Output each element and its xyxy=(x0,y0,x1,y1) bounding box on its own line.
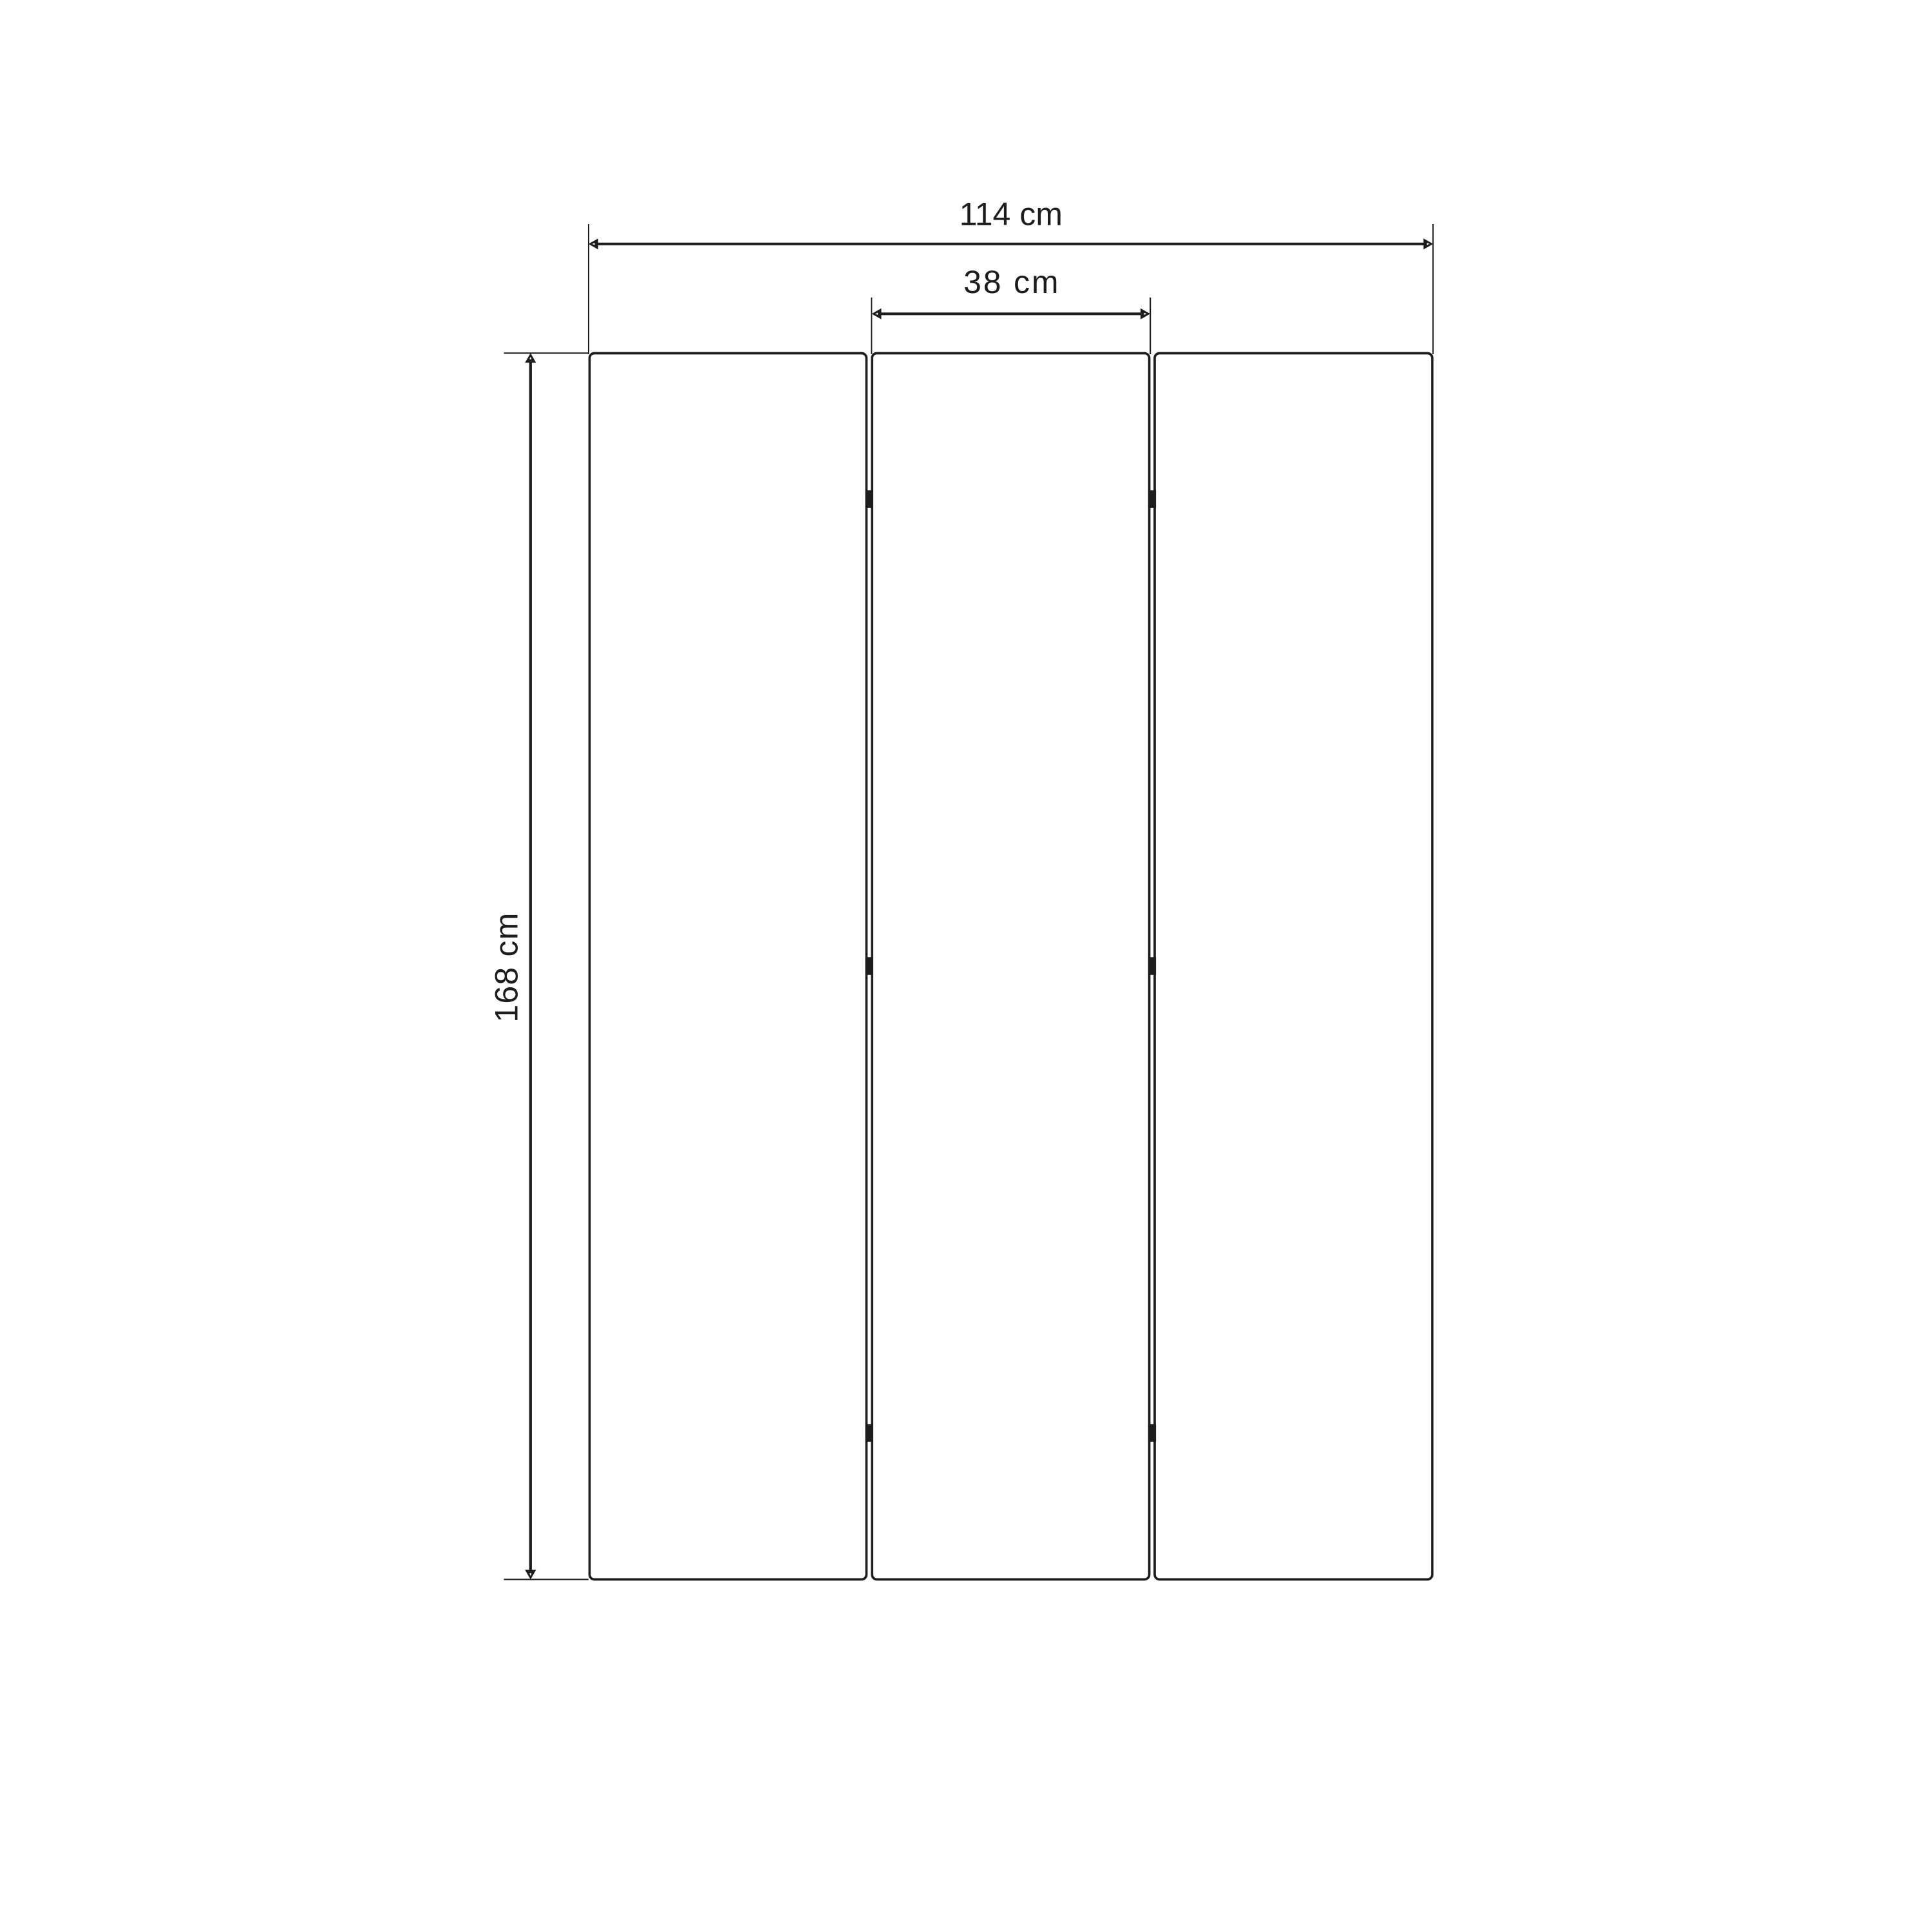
svg-text:168 cm: 168 cm xyxy=(489,912,525,1022)
svg-text:114 cm: 114 cm xyxy=(960,196,1063,232)
svg-text:38 cm: 38 cm xyxy=(963,264,1060,300)
